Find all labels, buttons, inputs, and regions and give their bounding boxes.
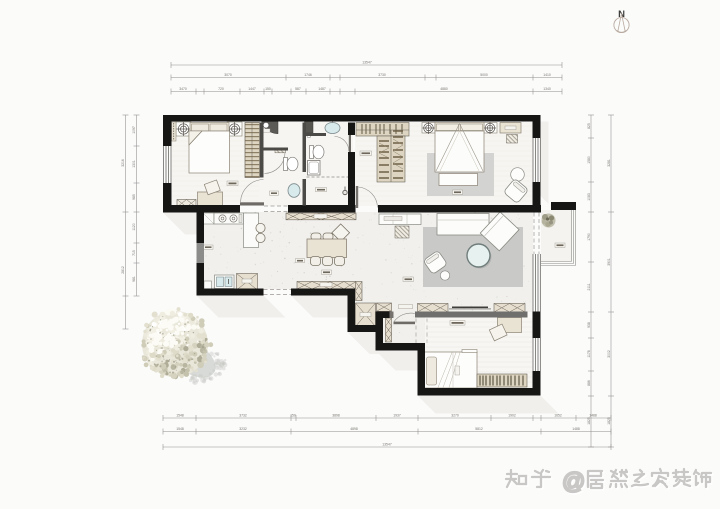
svg-text:825: 825 [587, 123, 591, 129]
svg-text:3281: 3281 [607, 159, 611, 167]
svg-text:1447: 1447 [248, 87, 256, 91]
svg-text:3270: 3270 [451, 414, 459, 418]
svg-text:3901: 3901 [607, 258, 611, 266]
svg-text:13547: 13547 [382, 443, 392, 447]
svg-text:715: 715 [132, 250, 136, 256]
svg-text:1178: 1178 [587, 350, 591, 357]
svg-text:1301: 1301 [132, 160, 136, 168]
svg-text:1825: 1825 [607, 417, 611, 425]
svg-text:150: 150 [290, 414, 296, 418]
svg-text:3232: 3232 [239, 427, 247, 431]
svg-text:587: 587 [295, 87, 301, 91]
svg-text:2111: 2111 [587, 283, 591, 290]
svg-text:1120: 1120 [132, 223, 136, 230]
svg-text:1097: 1097 [132, 126, 136, 134]
svg-text:1746: 1746 [304, 73, 312, 77]
svg-text:1340: 1340 [543, 87, 551, 91]
svg-text:2812: 2812 [121, 266, 125, 274]
svg-text:1937: 1937 [393, 414, 401, 418]
svg-text:981: 981 [132, 276, 136, 282]
svg-text:3732: 3732 [239, 414, 247, 418]
svg-text:5812: 5812 [475, 427, 483, 431]
svg-text:3470: 3470 [179, 87, 187, 91]
svg-text:1488: 1488 [589, 414, 597, 418]
svg-text:1825: 1825 [587, 417, 591, 425]
svg-text:150: 150 [265, 87, 271, 91]
svg-text:1548: 1548 [176, 427, 184, 431]
svg-text:3216: 3216 [121, 159, 125, 167]
svg-text:1652: 1652 [554, 414, 562, 418]
svg-text:886: 886 [587, 380, 591, 386]
svg-text:1488: 1488 [572, 427, 580, 431]
svg-text:1580: 1580 [587, 156, 591, 164]
svg-text:938: 938 [587, 322, 591, 328]
svg-text:1902: 1902 [508, 414, 516, 418]
svg-text:720: 720 [218, 87, 224, 91]
svg-text:3002: 3002 [607, 350, 611, 358]
svg-text:3898: 3898 [332, 414, 340, 418]
svg-text:1410: 1410 [543, 73, 551, 77]
svg-text:1083: 1083 [587, 193, 591, 201]
svg-text:1548: 1548 [176, 414, 184, 418]
svg-text:1487: 1487 [318, 87, 326, 91]
svg-text:13547: 13547 [362, 61, 372, 65]
svg-text:@: @ [562, 468, 585, 494]
svg-text:5000: 5000 [480, 73, 488, 77]
svg-text:4880: 4880 [440, 87, 448, 91]
svg-text:3730: 3730 [378, 73, 386, 77]
svg-text:4898: 4898 [350, 427, 358, 431]
svg-text:3070: 3070 [224, 73, 232, 77]
svg-text:1790: 1790 [587, 233, 591, 241]
svg-text:985: 985 [132, 194, 136, 200]
